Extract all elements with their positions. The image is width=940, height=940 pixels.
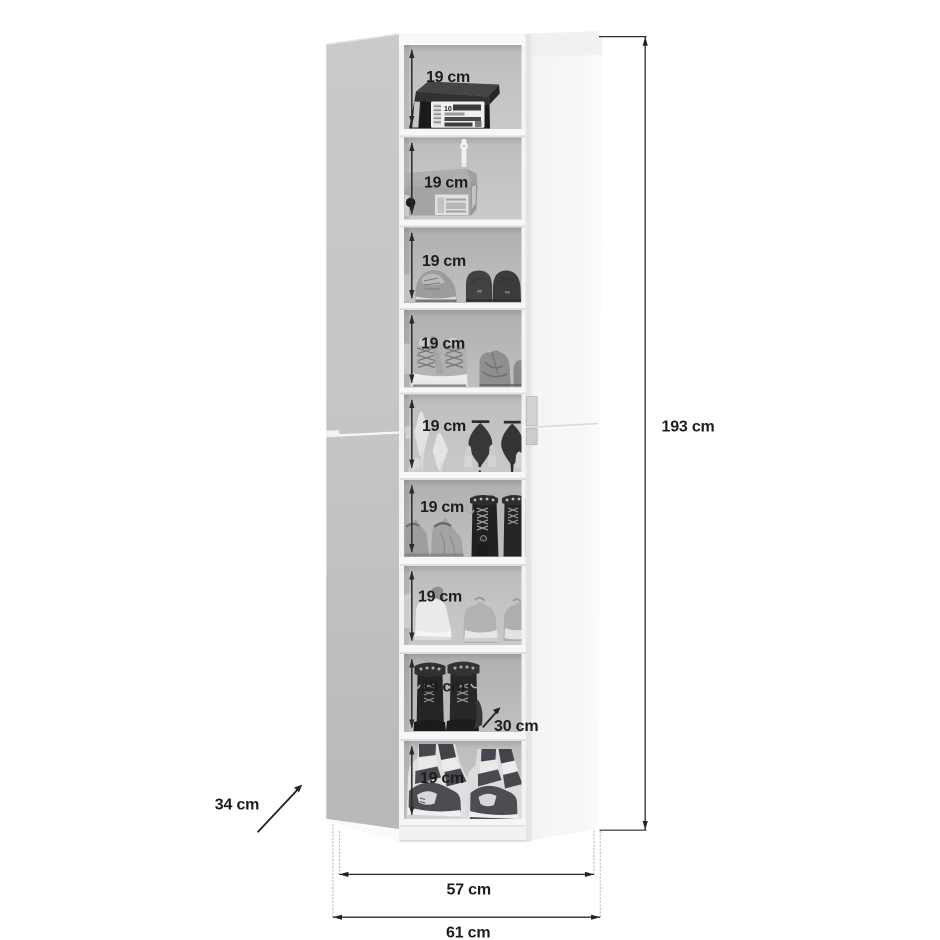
svg-text:19 cm: 19 cm	[422, 418, 466, 435]
svg-text:19 cm: 19 cm	[426, 69, 470, 86]
svg-text:30 cm: 30 cm	[494, 718, 538, 735]
svg-text:19 cm: 19 cm	[421, 679, 465, 696]
svg-text:19 cm: 19 cm	[422, 253, 466, 270]
svg-text:19 cm: 19 cm	[420, 499, 464, 516]
svg-text:61 cm: 61 cm	[446, 924, 490, 940]
svg-text:57 cm: 57 cm	[447, 882, 491, 899]
svg-text:34 cm: 34 cm	[215, 797, 259, 814]
svg-text:193 cm: 193 cm	[662, 419, 715, 436]
svg-text:19 cm: 19 cm	[421, 336, 465, 353]
svg-text:19 cm: 19 cm	[424, 175, 468, 192]
svg-text:10: 10	[444, 106, 452, 113]
svg-text:19 cm: 19 cm	[418, 589, 462, 606]
svg-text:19 cm: 19 cm	[420, 770, 464, 787]
